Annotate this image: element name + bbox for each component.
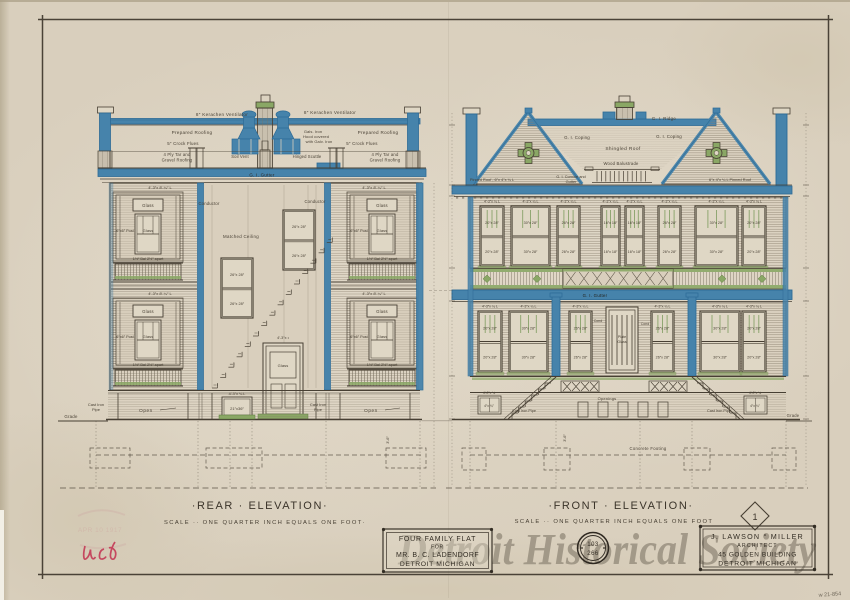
svg-text:16″x 18″: 16″x 18″ (628, 221, 642, 225)
svg-text:4′-3″x 8′-¼″ L: 4′-3″x 8′-¼″ L (362, 185, 386, 190)
svg-text:3′-6″: 3′-6″ (563, 434, 567, 442)
svg-text:20″x 28″: 20″x 28″ (483, 326, 497, 330)
svg-text:26″x 28″: 26″x 28″ (574, 356, 588, 360)
svg-text:30″x 28″: 30″x 28″ (524, 221, 538, 225)
svg-text:20″x 28″: 20″x 28″ (485, 250, 499, 254)
svg-text:4′-3″x ¼ L: 4′-3″x ¼ L (712, 305, 728, 309)
svg-text:4′-3″x ¼ L: 4′-3″x ¼ L (561, 200, 577, 204)
svg-text:Prepared Roofing: Prepared Roofing (172, 130, 213, 135)
svg-text:8″ Kerachen Ventilator: 8″ Kerachen Ventilator (196, 112, 248, 117)
svg-text:20″x 28″: 20″x 28″ (747, 356, 761, 360)
svg-text:5″ Crock Flues: 5″ Crock Flues (346, 141, 378, 146)
svg-text:G. I. Coping: G. I. Coping (564, 135, 590, 140)
svg-text:·REAR · ELEVATION·: ·REAR · ELEVATION· (192, 500, 329, 512)
svg-text:6″x6″ Post: 6″x6″ Post (350, 335, 368, 339)
svg-text:4′-3″x ¼ L: 4′-3″x ¼ L (746, 200, 762, 204)
svg-text:with Galv. Iron: with Galv. Iron (306, 139, 333, 144)
svg-text:4′-3″x 8′-¼″ L: 4′-3″x 8′-¼″ L (148, 291, 172, 296)
svg-text:4′-3″x ¼ L: 4′-3″x ¼ L (627, 200, 643, 204)
svg-text:26″x 28″: 26″x 28″ (574, 326, 588, 330)
svg-text:Openings: Openings (598, 396, 617, 401)
svg-text:Open: Open (364, 408, 378, 413)
svg-text:4′-3″x ¼ L: 4′-3″x ¼ L (573, 305, 589, 309)
svg-text:Soil Vent: Soil Vent (231, 154, 249, 159)
svg-text:4′-3″x ¼ L: 4′-3″x ¼ L (662, 200, 678, 204)
svg-text:Cast Iron Pipe: Cast Iron Pipe (707, 409, 731, 413)
svg-text:26″x 28″: 26″x 28″ (562, 221, 576, 225)
svg-text:G. I. Coping: G. I. Coping (656, 134, 682, 139)
svg-text:4′-3″x 8′-¼″ L: 4′-3″x 8′-¼″ L (148, 185, 172, 190)
svg-text:103: 103 (587, 542, 599, 548)
svg-text:4′-3″x ¼ L: 4′-3″x ¼ L (484, 200, 500, 204)
svg-text:Cond: Cond (594, 319, 603, 323)
svg-text:Grade: Grade (787, 413, 800, 418)
svg-text:20″x 28″: 20″x 28″ (485, 221, 499, 225)
svg-text:Gravel Roofing: Gravel Roofing (162, 158, 193, 163)
svg-text:Open: Open (139, 408, 153, 413)
svg-text:26″x 28″: 26″x 28″ (562, 250, 576, 254)
svg-text:26″x 28″: 26″x 28″ (663, 221, 677, 225)
svg-text:Pipe: Pipe (314, 407, 323, 412)
svg-text:SCALE ·· ONE QUARTER INCH E: SCALE ·· ONE QUARTER INCH EQUALS ONE FOO… (164, 520, 366, 526)
svg-text:4′-3″x ¼ L: 4′-3″x ¼ L (746, 305, 762, 309)
svg-text:6″x6″ Post: 6″x6″ Post (116, 229, 134, 233)
svg-text:Glass: Glass (376, 309, 388, 314)
svg-text:20″x 28″: 20″x 28″ (747, 250, 761, 254)
svg-text:26″x 28″: 26″x 28″ (292, 254, 307, 258)
svg-text:Shingled Roof: Shingled Roof (605, 146, 641, 152)
svg-text:1½″ Bal 2½″ apart: 1½″ Bal 2½″ apart (133, 257, 164, 261)
svg-text:1½″ Bal 2½″ apart: 1½″ Bal 2½″ apart (367, 363, 398, 367)
svg-text:4′-0″x ¼: 4′-0″x ¼ (749, 391, 761, 395)
svg-text:MR. B. C. LADENDORF: MR. B. C. LADENDORF (396, 552, 479, 559)
svg-text:Concrete Footing: Concrete Footing (630, 446, 667, 451)
svg-text:4′-3″x ¼ L: 4′-3″x ¼ L (521, 305, 537, 309)
svg-text:Glass: Glass (377, 228, 388, 233)
svg-text:266: 266 (587, 551, 599, 557)
svg-text:6″x6″ Post: 6″x6″ Post (116, 335, 134, 339)
svg-text:4″x ¼″: 4″x ¼″ (484, 404, 495, 408)
svg-text:4 Ply Tar and: 4 Ply Tar and (372, 152, 399, 157)
svg-text:30″x 28″: 30″x 28″ (713, 326, 727, 330)
svg-text:Matched Ceiling: Matched Ceiling (223, 234, 259, 239)
svg-text:Plate: Plate (618, 335, 626, 339)
svg-text:3′-6″: 3′-6″ (386, 436, 390, 444)
svg-text:20″x 28″: 20″x 28″ (747, 326, 761, 330)
svg-text:DETROIT MICHIGAN: DETROIT MICHIGAN (400, 561, 475, 568)
svg-text:·FRONT · ELEVATION·: ·FRONT · ELEVATION· (548, 500, 693, 512)
svg-text:J. LAWSON ° MILLER: J. LAWSON ° MILLER (711, 532, 804, 541)
svg-text:4′-3″x ¼ L: 4′-3″x ¼ L (709, 200, 725, 204)
svg-text:26″x 28″: 26″x 28″ (656, 326, 670, 330)
svg-text:G. I. Ridge: G. I. Ridge (652, 116, 677, 121)
svg-text:FOR: FOR (431, 545, 444, 551)
svg-text:30″x 28″: 30″x 28″ (710, 250, 724, 254)
svg-text:1½″ Bal 2½″ apart: 1½″ Bal 2½″ apart (367, 257, 398, 261)
svg-text:Gutter: Gutter (566, 179, 578, 184)
svg-text:APR 10 1917: APR 10 1917 (78, 527, 122, 534)
svg-text:Gravel Roofing: Gravel Roofing (370, 158, 401, 163)
svg-text:Glass: Glass (143, 334, 154, 339)
svg-text:4′-0″x ¼: 4′-0″x ¼ (483, 391, 495, 395)
svg-text:Glass: Glass (278, 363, 289, 368)
svg-text:Cond: Cond (641, 322, 650, 326)
svg-text:4′-3″x ¼ L: 4′-3″x ¼ L (482, 305, 498, 309)
svg-text:G. I. Gutter: G. I. Gutter (249, 173, 275, 178)
svg-text:20″x 28″: 20″x 28″ (483, 356, 497, 360)
svg-text:26″x 28″: 26″x 28″ (230, 302, 245, 306)
svg-text:Grade: Grade (64, 414, 78, 419)
svg-text:4 Ply Tar and: 4 Ply Tar and (164, 152, 191, 157)
svg-text:Glass: Glass (142, 309, 154, 314)
svg-text:Glass: Glass (376, 203, 388, 208)
svg-text:Conductor: Conductor (198, 201, 220, 206)
svg-text:4′-3″x ¼ L: 4′-3″x ¼ L (523, 200, 539, 204)
svg-text:6″x6″ Post: 6″x6″ Post (350, 229, 368, 233)
svg-text:4′-3″x 8′-¼″ L: 4′-3″x 8′-¼″ L (362, 291, 386, 296)
svg-text:Glass: Glass (143, 228, 154, 233)
svg-text:30″x 28″: 30″x 28″ (710, 221, 724, 225)
svg-text:6″x 4″x ¼ L Pinned Roof: 6″x 4″x ¼ L Pinned Roof (709, 177, 752, 182)
svg-text:4″x ¼″: 4″x ¼″ (750, 404, 761, 408)
svg-text:Pipe: Pipe (92, 407, 101, 412)
svg-text:26″x 28″: 26″x 28″ (663, 250, 677, 254)
svg-text:Glass: Glass (377, 334, 388, 339)
svg-text:26″x 28″: 26″x 28″ (656, 356, 670, 360)
svg-text:5″ Crock Flues: 5″ Crock Flues (167, 141, 199, 146)
svg-text:16″x 18″: 16″x 18″ (628, 250, 642, 254)
svg-text:30″x 28″: 30″x 28″ (713, 356, 727, 360)
svg-text:21″x36″: 21″x36″ (230, 406, 244, 411)
svg-text:1: 1 (752, 512, 757, 522)
svg-text:30″x 28″: 30″x 28″ (524, 250, 538, 254)
svg-text:30″x 28″: 30″x 28″ (522, 356, 536, 360)
svg-text:26″x 28″: 26″x 28″ (230, 273, 245, 277)
svg-text:4′-3″x ¼ L: 4′-3″x ¼ L (603, 200, 619, 204)
svg-text:DETROIT MICHIGAN: DETROIT MICHIGAN (718, 561, 796, 568)
svg-text:30″x 28″: 30″x 28″ (522, 326, 536, 330)
svg-text:G. I. Gutter: G. I. Gutter (583, 293, 608, 298)
svg-text:26″x 28″: 26″x 28″ (292, 225, 307, 229)
svg-text:Prepared Roofing: Prepared Roofing (358, 130, 399, 135)
svg-text:8″ Kerachen Ventilator: 8″ Kerachen Ventilator (304, 110, 356, 115)
svg-text:4′-3″x ¼ L: 4′-3″x ¼ L (229, 392, 246, 396)
svg-text:16″x 18″: 16″x 18″ (604, 250, 618, 254)
svg-text:1½″ Bal 2½″ apart: 1½″ Bal 2½″ apart (133, 363, 164, 367)
svg-text:Cast Iron Pipe: Cast Iron Pipe (512, 409, 536, 413)
svg-text:45 GOLDEN BUILDING: 45 GOLDEN BUILDING (718, 552, 797, 559)
svg-text:ARCHITECT: ARCHITECT (737, 543, 777, 549)
svg-text:4′-3″x •: 4′-3″x • (277, 336, 289, 340)
svg-text:Glass: Glass (617, 340, 626, 344)
svg-text:FOUR FAMILY FLAT: FOUR FAMILY FLAT (399, 536, 476, 543)
svg-text:Conductor: Conductor (304, 199, 326, 204)
svg-text:4′-3″x ¼ L: 4′-3″x ¼ L (655, 305, 671, 309)
svg-text:Pinned Roof , 6″x 4″x ¼ L: Pinned Roof , 6″x 4″x ¼ L (470, 177, 515, 182)
svg-text:20″x 28″: 20″x 28″ (747, 221, 761, 225)
svg-text:Wood Balustrade: Wood Balustrade (603, 161, 639, 166)
svg-text:Hinged Scuttle: Hinged Scuttle (293, 154, 322, 159)
svg-text:Glass: Glass (142, 203, 154, 208)
svg-text:16″x 18″: 16″x 18″ (604, 221, 618, 225)
